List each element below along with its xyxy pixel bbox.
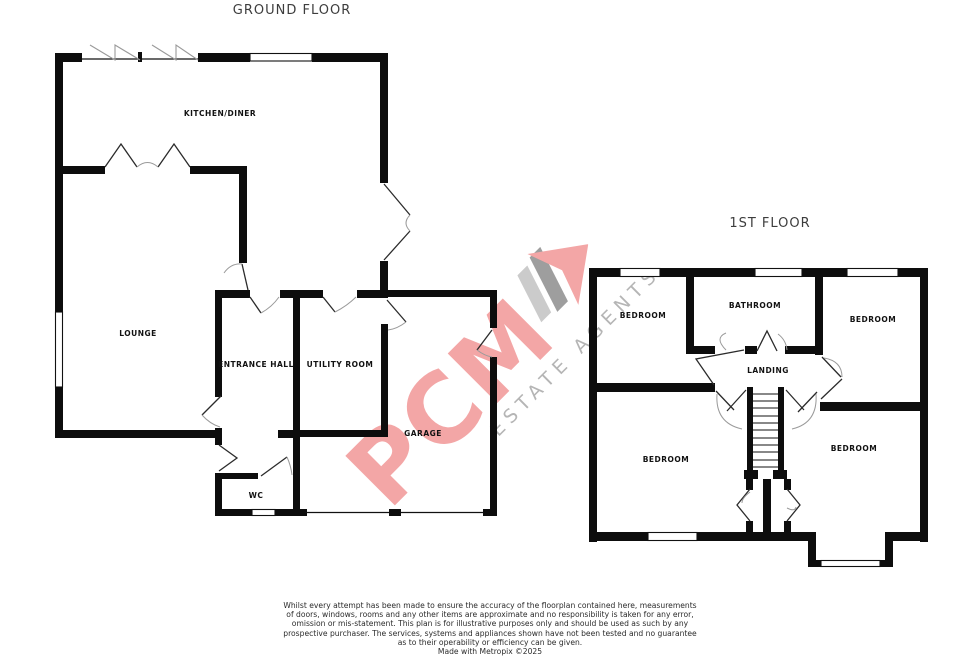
- stairs-treads-icon: [753, 394, 778, 467]
- front-door-icon: [219, 445, 237, 471]
- room-label-bathroom: BATHROOM: [729, 301, 781, 310]
- wc-window: [252, 510, 275, 516]
- kitchen-lounge-double-door-icon: [105, 144, 137, 167]
- bedroom-br-door-icon: [786, 390, 817, 412]
- disclaimer-line: as to their operability or efficiency ca…: [140, 638, 840, 647]
- wc-door-icon: [261, 457, 287, 476]
- room-label-bedroom-top-left: BEDROOM: [620, 311, 667, 320]
- room-label-utility-room: UTILITY ROOM: [307, 360, 374, 369]
- bifold-doors-icon: [90, 45, 198, 60]
- ground-floor-labels: KITCHEN/DINER LOUNGE ENTRANCE HALL UTILI…: [119, 109, 442, 500]
- floorplan-page: { "ground_floor": { "title": "GROUND FLO…: [0, 0, 980, 652]
- disclaimer-line: prospective purchaser. The services, sys…: [140, 629, 840, 638]
- room-label-garage: GARAGE: [404, 429, 442, 438]
- bedroom-tl-door-icon: [696, 350, 744, 385]
- lounge-window: [56, 312, 63, 387]
- room-label-bedroom-bottom-right: BEDROOM: [831, 444, 878, 453]
- bedroom-tl-window: [620, 269, 660, 277]
- ground-floor-thin-walls: [82, 59, 483, 513]
- cupboard-right-bifold-icon: [787, 489, 800, 521]
- stairs-rail-right: [778, 387, 784, 475]
- room-label-lounge: LOUNGE: [119, 329, 157, 338]
- bedroom-tr-door-icon: [821, 357, 842, 399]
- ground-floor-walls: [55, 52, 497, 516]
- first-floor-labels: BEDROOM BATHROOM BEDROOM BEDROOM BEDROOM…: [620, 301, 897, 464]
- bay-window: [821, 561, 880, 567]
- disclaimer-line: omission or mis-statement. This plan is …: [140, 619, 840, 628]
- ground-floor-windows: [56, 54, 313, 516]
- room-label-bedroom-top-right: BEDROOM: [850, 315, 897, 324]
- lounge-hall-door-icon: [242, 264, 248, 290]
- bedroom-tr-window: [847, 269, 898, 277]
- bathroom-door-icon: [757, 331, 777, 351]
- ground-floor-title: GROUND FLOOR: [233, 3, 351, 18]
- room-label-landing: LANDING: [747, 366, 789, 375]
- room-label-bedroom-bottom-left: BEDROOM: [643, 455, 690, 464]
- first-floor-plan: 1ST FLOOR: [589, 216, 928, 567]
- bedroom-bl-window: [648, 533, 697, 541]
- disclaimer-line: Whilst every attempt has been made to en…: [140, 601, 840, 610]
- room-label-wc: WC: [249, 491, 264, 500]
- ground-floor-plan: GROUND FLOOR: [55, 3, 497, 516]
- utility-door-icon: [323, 297, 335, 312]
- floorplan-canvas: GROUND FLOOR: [0, 0, 980, 652]
- disclaimer-line: of doors, windows, rooms and any other i…: [140, 610, 840, 619]
- room-label-kitchen-diner: KITCHEN/DINER: [184, 109, 256, 118]
- disclaimer-text: Whilst every attempt has been made to en…: [140, 601, 840, 656]
- room-label-entrance-hall: ENTRANCE HALL: [218, 360, 294, 369]
- garage-side-door-icon: [477, 330, 492, 350]
- stairs-rail-left: [747, 387, 753, 475]
- hall-door-icon: [250, 297, 261, 313]
- first-floor-title: 1ST FLOOR: [729, 216, 810, 231]
- bathroom-window: [755, 269, 802, 277]
- bedroom-bl-door-icon: [716, 390, 746, 411]
- kitchen-window: [250, 54, 312, 62]
- lounge-door-icon: [202, 396, 221, 415]
- utility-garage-door-icon: [387, 300, 406, 322]
